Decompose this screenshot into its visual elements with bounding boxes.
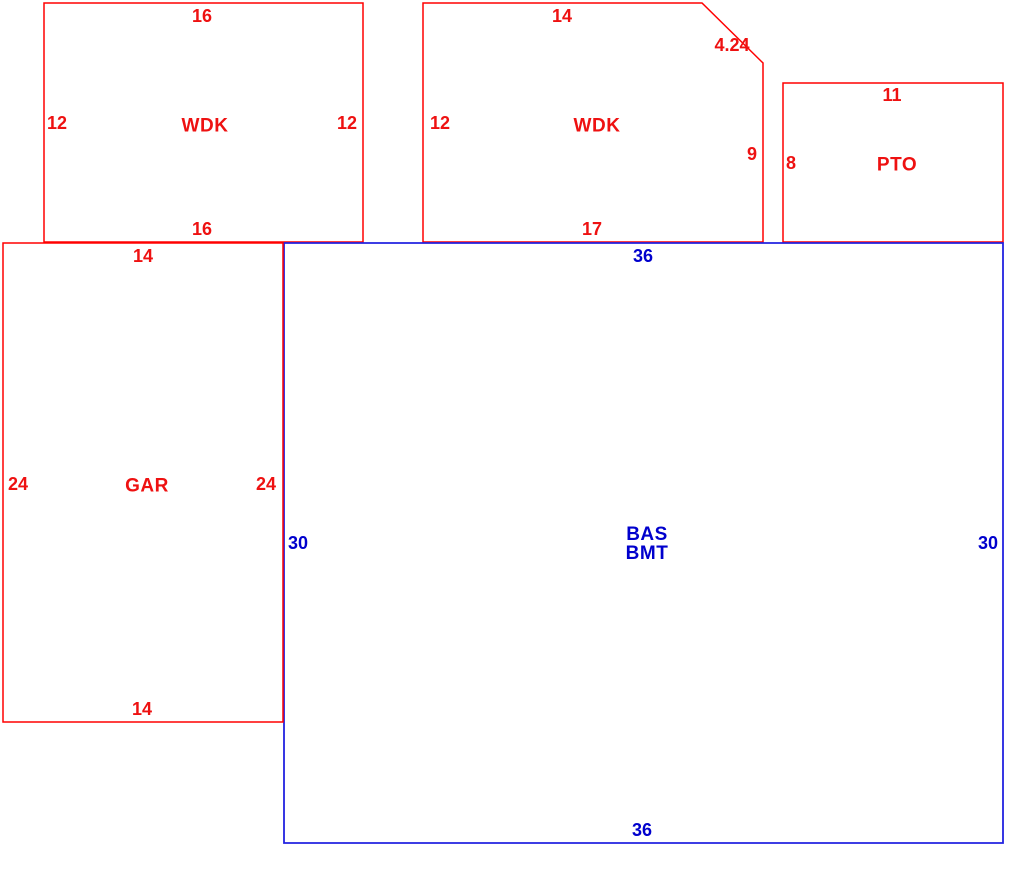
gar-label: GAR (125, 476, 169, 497)
area-pto: PTO118 (783, 83, 1003, 242)
bas-bmt-dim-bottom: 36 (632, 820, 652, 840)
wdk-mid-label: WDK (574, 116, 621, 137)
pto-dim-top: 11 (882, 85, 901, 105)
area-bas-bmt: BASBMT36303036 (284, 243, 1003, 843)
wdk-mid-dim-bottom: 17 (582, 219, 602, 239)
gar-dim-right: 24 (256, 474, 276, 494)
wdk-mid-dim-top: 14 (552, 6, 572, 26)
pto-dim-left: 8 (786, 153, 796, 173)
bas-bmt-label-line1: BAS (626, 524, 668, 545)
wdk-left-dim-bottom: 16 (192, 219, 212, 239)
gar-dim-bottom: 14 (132, 699, 152, 719)
floorplan-sketch: WDK16121216WDK144.2412917PTO118BASBMT363… (0, 0, 1035, 882)
bas-bmt-dim-top: 36 (633, 246, 653, 266)
wdk-left-dim-left: 12 (47, 113, 67, 133)
pto-label: PTO (877, 155, 917, 176)
sketch-svg: WDK16121216WDK144.2412917PTO118BASBMT363… (0, 0, 1035, 882)
bas-bmt-dim-left: 30 (288, 533, 308, 553)
wdk-mid-dim-right: 9 (747, 144, 757, 164)
area-wdk-left: WDK16121216 (44, 3, 363, 242)
wdk-mid-dim-diagonal: 4.24 (714, 35, 749, 55)
gar-dim-left: 24 (8, 474, 28, 494)
gar-dim-top: 14 (133, 246, 153, 266)
area-gar: GAR14242414 (3, 243, 283, 722)
wdk-left-label: WDK (182, 116, 229, 137)
wdk-left-dim-top: 16 (192, 6, 212, 26)
bas-bmt-label-line2: BMT (626, 543, 669, 564)
bas-bmt-dim-right: 30 (978, 533, 998, 553)
area-wdk-mid: WDK144.2412917 (423, 3, 763, 242)
wdk-left-dim-right: 12 (337, 113, 357, 133)
wdk-mid-dim-left: 12 (430, 113, 450, 133)
